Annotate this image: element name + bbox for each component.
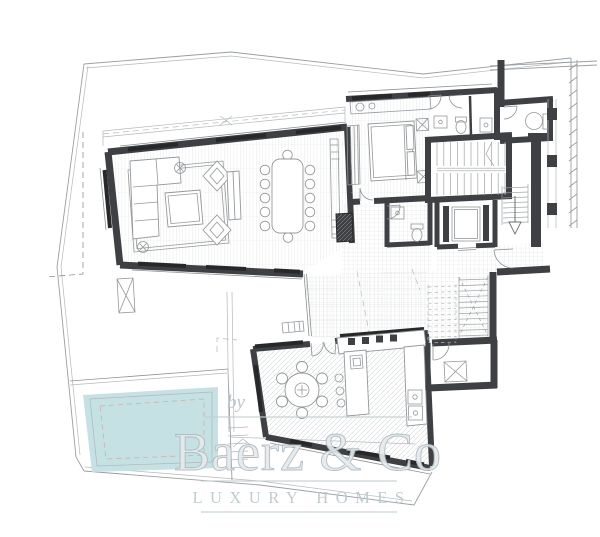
tall-cabinet <box>404 345 427 426</box>
bed <box>368 121 417 181</box>
kitchen-island <box>344 350 369 416</box>
pilaster <box>547 108 557 120</box>
partition-wall <box>470 96 471 136</box>
watermark-tagline: LUXURY HOMES <box>192 488 411 507</box>
pilaster <box>547 155 557 167</box>
wall <box>497 269 550 272</box>
wall <box>432 90 497 94</box>
dining-table <box>272 159 303 233</box>
fireplace <box>336 213 353 242</box>
floor-plan-page: by Baerz & Co LUXURY HOMES <box>0 0 600 537</box>
watermark-brand: Baerz & Co <box>174 422 442 482</box>
pilaster <box>547 203 557 215</box>
sideboard <box>227 171 241 220</box>
floor-plan-drawing: by Baerz & Co LUXURY HOMES <box>0 0 600 537</box>
watermark-by: by <box>227 392 246 413</box>
